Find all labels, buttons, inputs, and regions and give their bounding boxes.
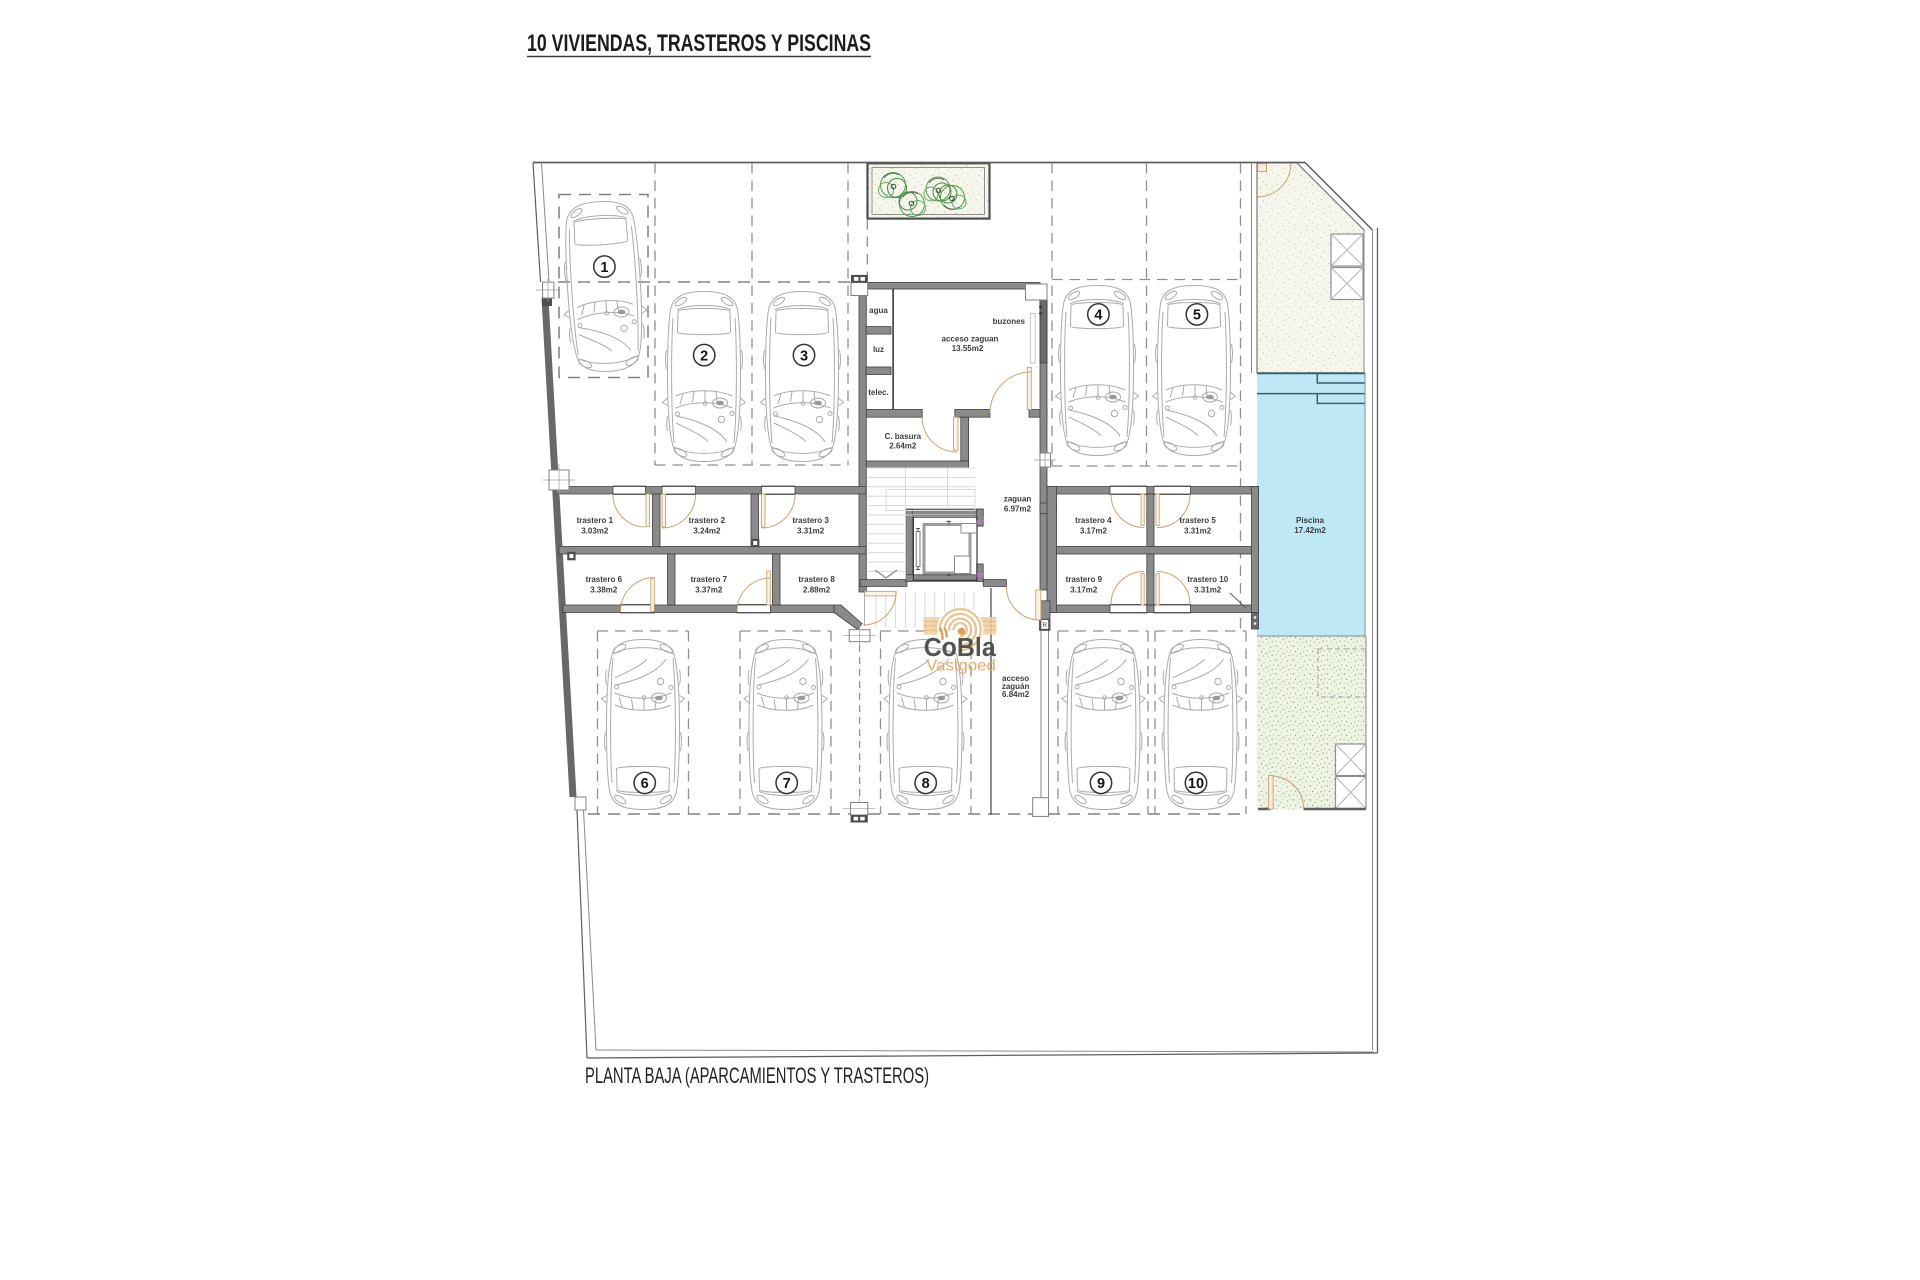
svg-text:4: 4	[1094, 308, 1102, 324]
svg-text:agua: agua	[869, 306, 888, 315]
svg-text:3.37m2: 3.37m2	[695, 585, 723, 594]
svg-text:trastero 10: trastero 10	[1187, 575, 1228, 584]
svg-text:C. basura: C. basura	[885, 432, 922, 441]
svg-text:Piscina: Piscina	[1296, 516, 1325, 525]
svg-text:trastero 6: trastero 6	[586, 575, 623, 584]
svg-text:buzones: buzones	[993, 317, 1026, 326]
svg-text:10 VIVIENDAS, TRASTEROS Y PISC: 10 VIVIENDAS, TRASTEROS Y PISCINAS	[527, 30, 871, 57]
svg-text:zaguan: zaguan	[1004, 494, 1032, 503]
svg-text:3.17m2: 3.17m2	[1070, 585, 1098, 594]
svg-text:9: 9	[1097, 776, 1105, 792]
svg-text:3.38m2: 3.38m2	[590, 585, 618, 594]
svg-text:2.88m2: 2.88m2	[803, 585, 831, 594]
svg-text:3.31m2: 3.31m2	[1184, 526, 1212, 535]
svg-text:acceso zaguan: acceso zaguan	[942, 335, 999, 344]
svg-text:trastero 3: trastero 3	[792, 516, 829, 525]
svg-text:3.31m2: 3.31m2	[797, 526, 825, 535]
svg-text:7: 7	[783, 776, 791, 792]
svg-text:trastero 1: trastero 1	[577, 516, 614, 525]
svg-text:5: 5	[1193, 308, 1201, 324]
svg-text:trastero 2: trastero 2	[689, 516, 726, 525]
svg-text:trastero 4: trastero 4	[1075, 516, 1112, 525]
svg-text:10: 10	[1188, 776, 1204, 792]
svg-text:3.03m2: 3.03m2	[581, 526, 609, 535]
svg-text:Vastgoed: Vastgoed	[926, 658, 996, 675]
svg-text:trastero 7: trastero 7	[691, 575, 728, 584]
svg-text:13.55m2: 13.55m2	[952, 344, 984, 353]
svg-text:3: 3	[800, 348, 808, 364]
svg-text:luz: luz	[873, 345, 884, 354]
svg-text:3.24m2: 3.24m2	[693, 526, 721, 535]
svg-text:trastero 9: trastero 9	[1066, 575, 1103, 584]
svg-text:1: 1	[600, 260, 608, 276]
svg-text:17.42m2: 17.42m2	[1294, 526, 1326, 535]
svg-text:8: 8	[922, 776, 930, 792]
svg-text:3.31m2: 3.31m2	[1194, 585, 1222, 594]
svg-text:6: 6	[641, 776, 649, 792]
svg-text:2: 2	[700, 348, 708, 364]
svg-text:PLANTA BAJA (APARCAMIENTOS Y T: PLANTA BAJA (APARCAMIENTOS Y TRASTEROS)	[585, 1063, 929, 1088]
svg-text:6.84m2: 6.84m2	[1002, 690, 1030, 699]
svg-text:6.97m2: 6.97m2	[1004, 504, 1032, 513]
svg-text:telec.: telec.	[868, 388, 888, 397]
svg-text:R: R	[1043, 623, 1048, 629]
svg-text:3.17m2: 3.17m2	[1080, 526, 1108, 535]
svg-text:2.64m2: 2.64m2	[889, 441, 917, 450]
svg-text:trastero 5: trastero 5	[1179, 516, 1216, 525]
svg-text:trastero 8: trastero 8	[798, 575, 835, 584]
